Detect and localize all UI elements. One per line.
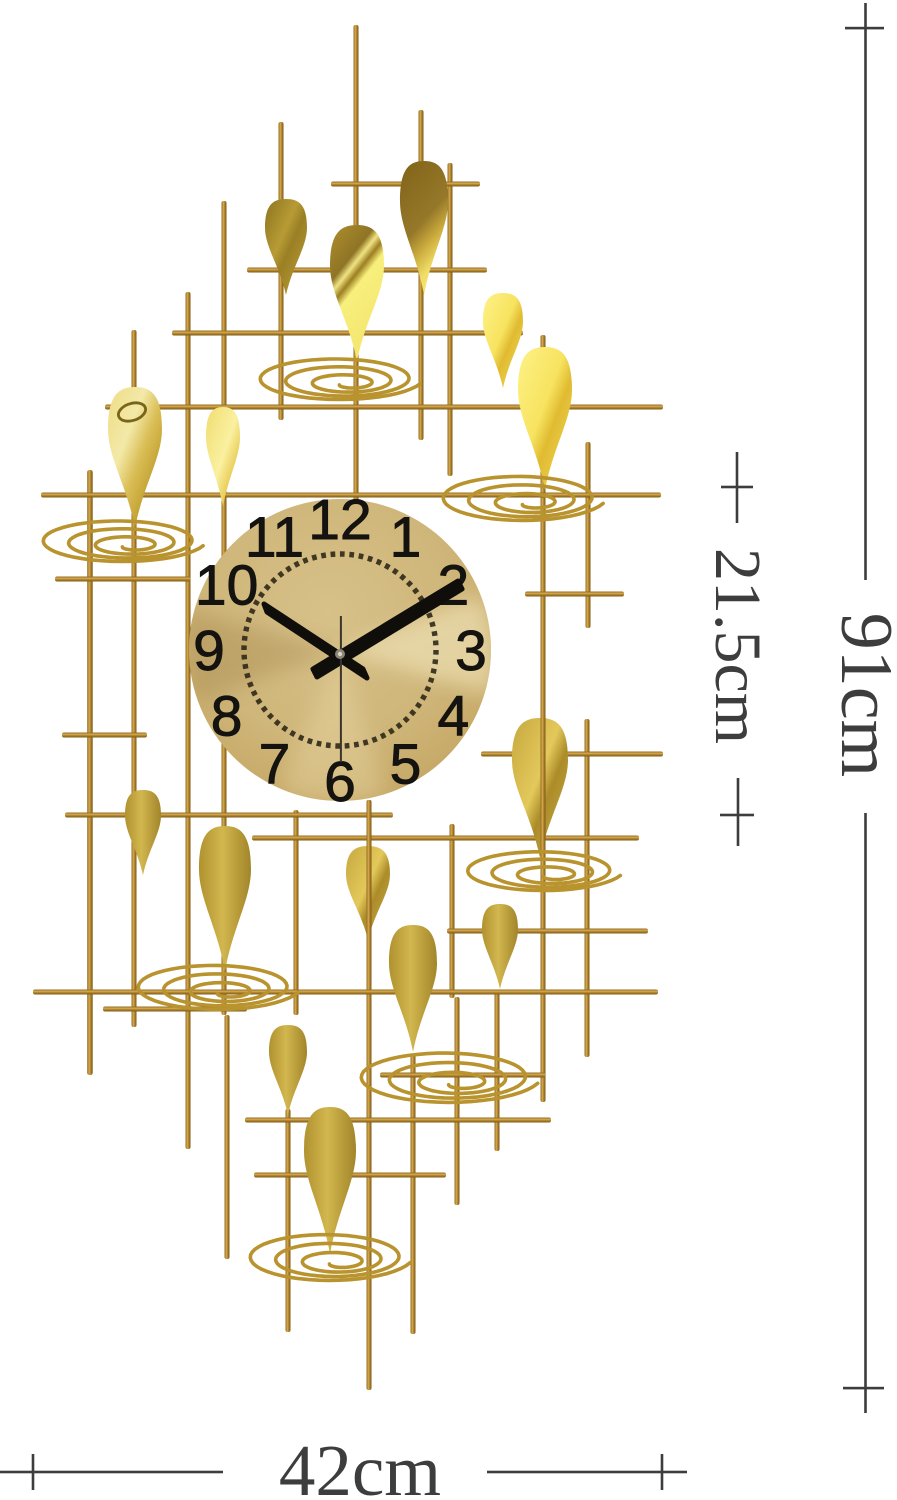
svg-text:4: 4	[438, 685, 470, 749]
svg-text:91cm: 91cm	[825, 613, 897, 777]
svg-text:3: 3	[455, 619, 487, 683]
svg-text:1: 1	[390, 506, 422, 570]
svg-text:21.5cm: 21.5cm	[701, 548, 774, 744]
svg-text:42cm: 42cm	[279, 1430, 441, 1500]
svg-text:12: 12	[308, 488, 371, 552]
svg-text:11: 11	[245, 506, 304, 570]
svg-text:7: 7	[259, 732, 291, 796]
svg-text:5: 5	[390, 732, 422, 796]
svg-text:8: 8	[211, 685, 243, 749]
svg-text:9: 9	[193, 619, 225, 683]
